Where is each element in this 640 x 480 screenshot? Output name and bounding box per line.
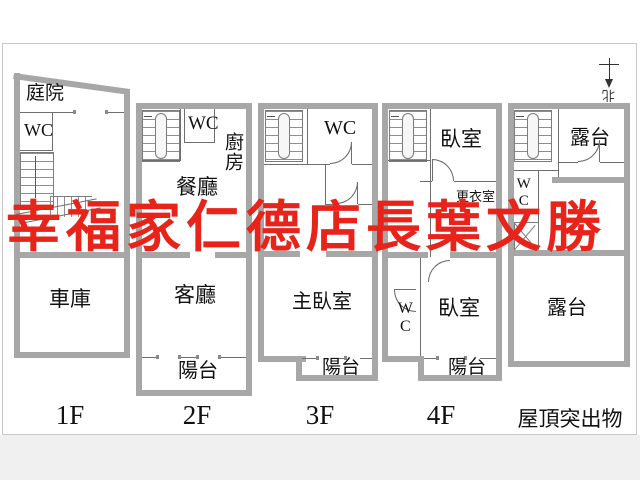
wall-line bbox=[180, 109, 181, 160]
door-tick bbox=[73, 110, 76, 114]
door-tick bbox=[218, 355, 221, 359]
door-tick bbox=[316, 356, 319, 360]
wall-segment bbox=[136, 390, 252, 396]
wall-segment bbox=[258, 103, 378, 109]
room-label-wc-4f: WC bbox=[396, 300, 413, 336]
floor-label-1f: 1F bbox=[56, 400, 85, 431]
door-tick bbox=[178, 355, 181, 359]
wall-line bbox=[558, 162, 578, 163]
door-tick bbox=[436, 356, 439, 360]
compass-crossbar bbox=[599, 64, 619, 65]
wall-segment bbox=[14, 352, 130, 358]
stairs-icon bbox=[514, 110, 552, 162]
wall-line bbox=[424, 358, 436, 359]
wall-line bbox=[360, 358, 372, 359]
wall-line bbox=[142, 160, 181, 161]
floor-label-2f: 2F bbox=[183, 400, 212, 431]
room-label-balcony-4f: 陽台 bbox=[448, 358, 486, 378]
stairs-arrow bbox=[35, 156, 36, 198]
wall-line bbox=[307, 109, 308, 164]
room-label-bedroom-lower: 臥室 bbox=[438, 297, 480, 319]
room-label-living: 客廳 bbox=[174, 284, 216, 306]
room-label-dining: 餐廳 bbox=[176, 176, 218, 198]
floor-plan-sheet: 北 庭院 WC 車庫 1F bbox=[0, 0, 640, 480]
wall-line bbox=[20, 150, 53, 151]
room-label-wc-1f: WC bbox=[24, 121, 53, 140]
wall-line bbox=[600, 162, 624, 163]
room-label-courtyard: 庭院 bbox=[26, 84, 64, 104]
wall-line bbox=[454, 181, 496, 182]
room-label-garage: 車庫 bbox=[49, 288, 91, 310]
room-label-wc-2f: WC bbox=[188, 114, 219, 134]
wall-line bbox=[388, 160, 430, 161]
door-tick bbox=[196, 355, 199, 359]
room-label-kitchen: 廚房 bbox=[222, 132, 242, 172]
wall-line bbox=[184, 109, 185, 142]
room-label-balcony-2f: 陽台 bbox=[178, 361, 218, 382]
stairs-icon bbox=[265, 110, 303, 162]
watermark-text: 幸福家仁德店長葉文勝 bbox=[6, 200, 640, 255]
wall-line bbox=[430, 109, 431, 181]
wall-segment bbox=[136, 103, 252, 109]
wall-line bbox=[352, 164, 372, 165]
door-leaf bbox=[351, 142, 352, 164]
wall-line bbox=[420, 258, 421, 356]
door-tick bbox=[156, 355, 159, 359]
wall-line bbox=[558, 109, 559, 178]
wall-segment bbox=[508, 103, 630, 109]
north-indicator: 北 bbox=[590, 55, 634, 105]
room-label-balcony-3f: 陽台 bbox=[322, 358, 360, 378]
wall-line bbox=[184, 142, 215, 143]
wall-line bbox=[514, 170, 558, 171]
door-leaf bbox=[394, 289, 416, 290]
wall-line bbox=[20, 112, 75, 113]
wall-line bbox=[178, 357, 198, 358]
compass-line bbox=[609, 58, 610, 80]
room-label-bedroom-upper: 臥室 bbox=[440, 128, 482, 150]
floor-label-rooftop: 屋頂突出物 bbox=[518, 403, 623, 433]
door-leaf bbox=[599, 140, 600, 162]
room-label-terrace-lower: 露台 bbox=[547, 298, 587, 319]
wall-line bbox=[218, 357, 246, 358]
bottom-margin bbox=[0, 435, 640, 480]
wall-segment bbox=[382, 103, 502, 109]
floor-label-3f: 3F bbox=[306, 400, 335, 431]
door-leaf bbox=[432, 159, 433, 181]
wall-line bbox=[264, 164, 307, 165]
wall-line bbox=[307, 164, 330, 165]
stairs-icon bbox=[142, 110, 180, 162]
room-label-master-bedroom: 主臥室 bbox=[292, 292, 352, 313]
door-tick bbox=[105, 110, 108, 114]
stairs-icon bbox=[389, 110, 427, 162]
wall-segment bbox=[552, 177, 624, 183]
floor-label-4f: 4F bbox=[427, 400, 456, 431]
wall-line bbox=[302, 358, 316, 359]
wall-segment bbox=[508, 361, 630, 367]
room-label-wc-3f: WC bbox=[324, 118, 356, 139]
